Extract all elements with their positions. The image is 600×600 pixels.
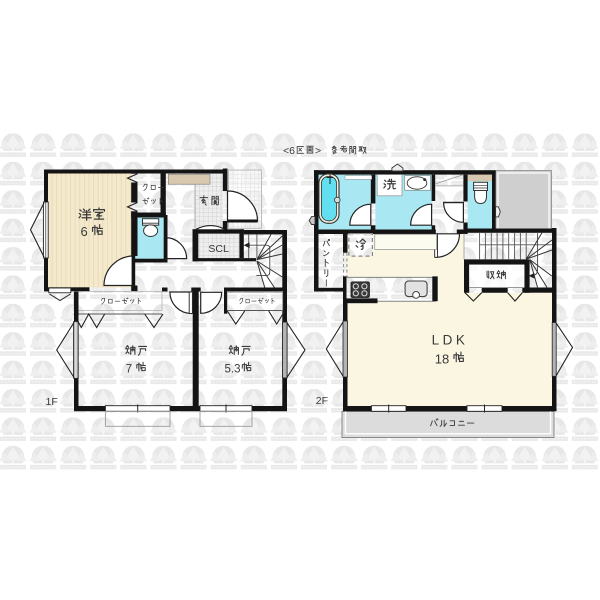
svg-text:LDK: LDK (432, 332, 469, 347)
svg-text:2F: 2F (316, 395, 328, 407)
svg-text:SCL: SCL (208, 243, 229, 255)
svg-text:7: 7 (126, 363, 132, 375)
svg-text:1F: 1F (46, 396, 58, 408)
svg-text:>: > (315, 145, 321, 157)
svg-text:<6: <6 (283, 145, 295, 157)
svg-text:6: 6 (81, 224, 88, 239)
svg-text:18: 18 (435, 351, 449, 366)
svg-text:5.3: 5.3 (225, 363, 241, 375)
